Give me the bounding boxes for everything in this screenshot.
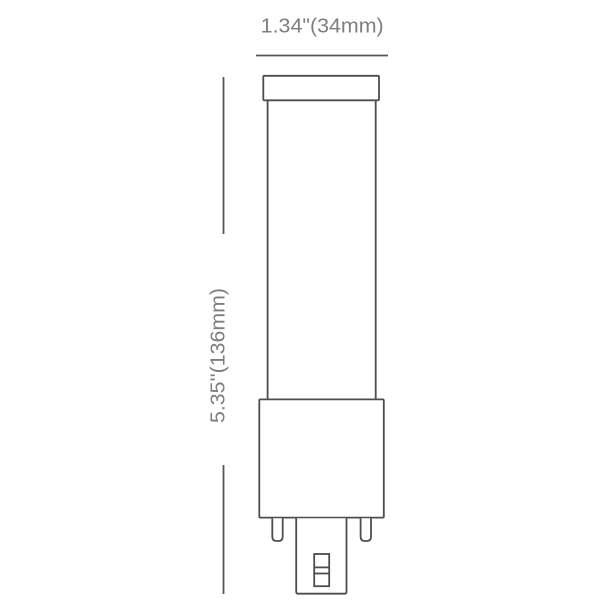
svg-text:5.35''(136mm): 5.35''(136mm) — [207, 288, 230, 423]
svg-text:1.34"(34mm): 1.34"(34mm) — [261, 14, 384, 37]
